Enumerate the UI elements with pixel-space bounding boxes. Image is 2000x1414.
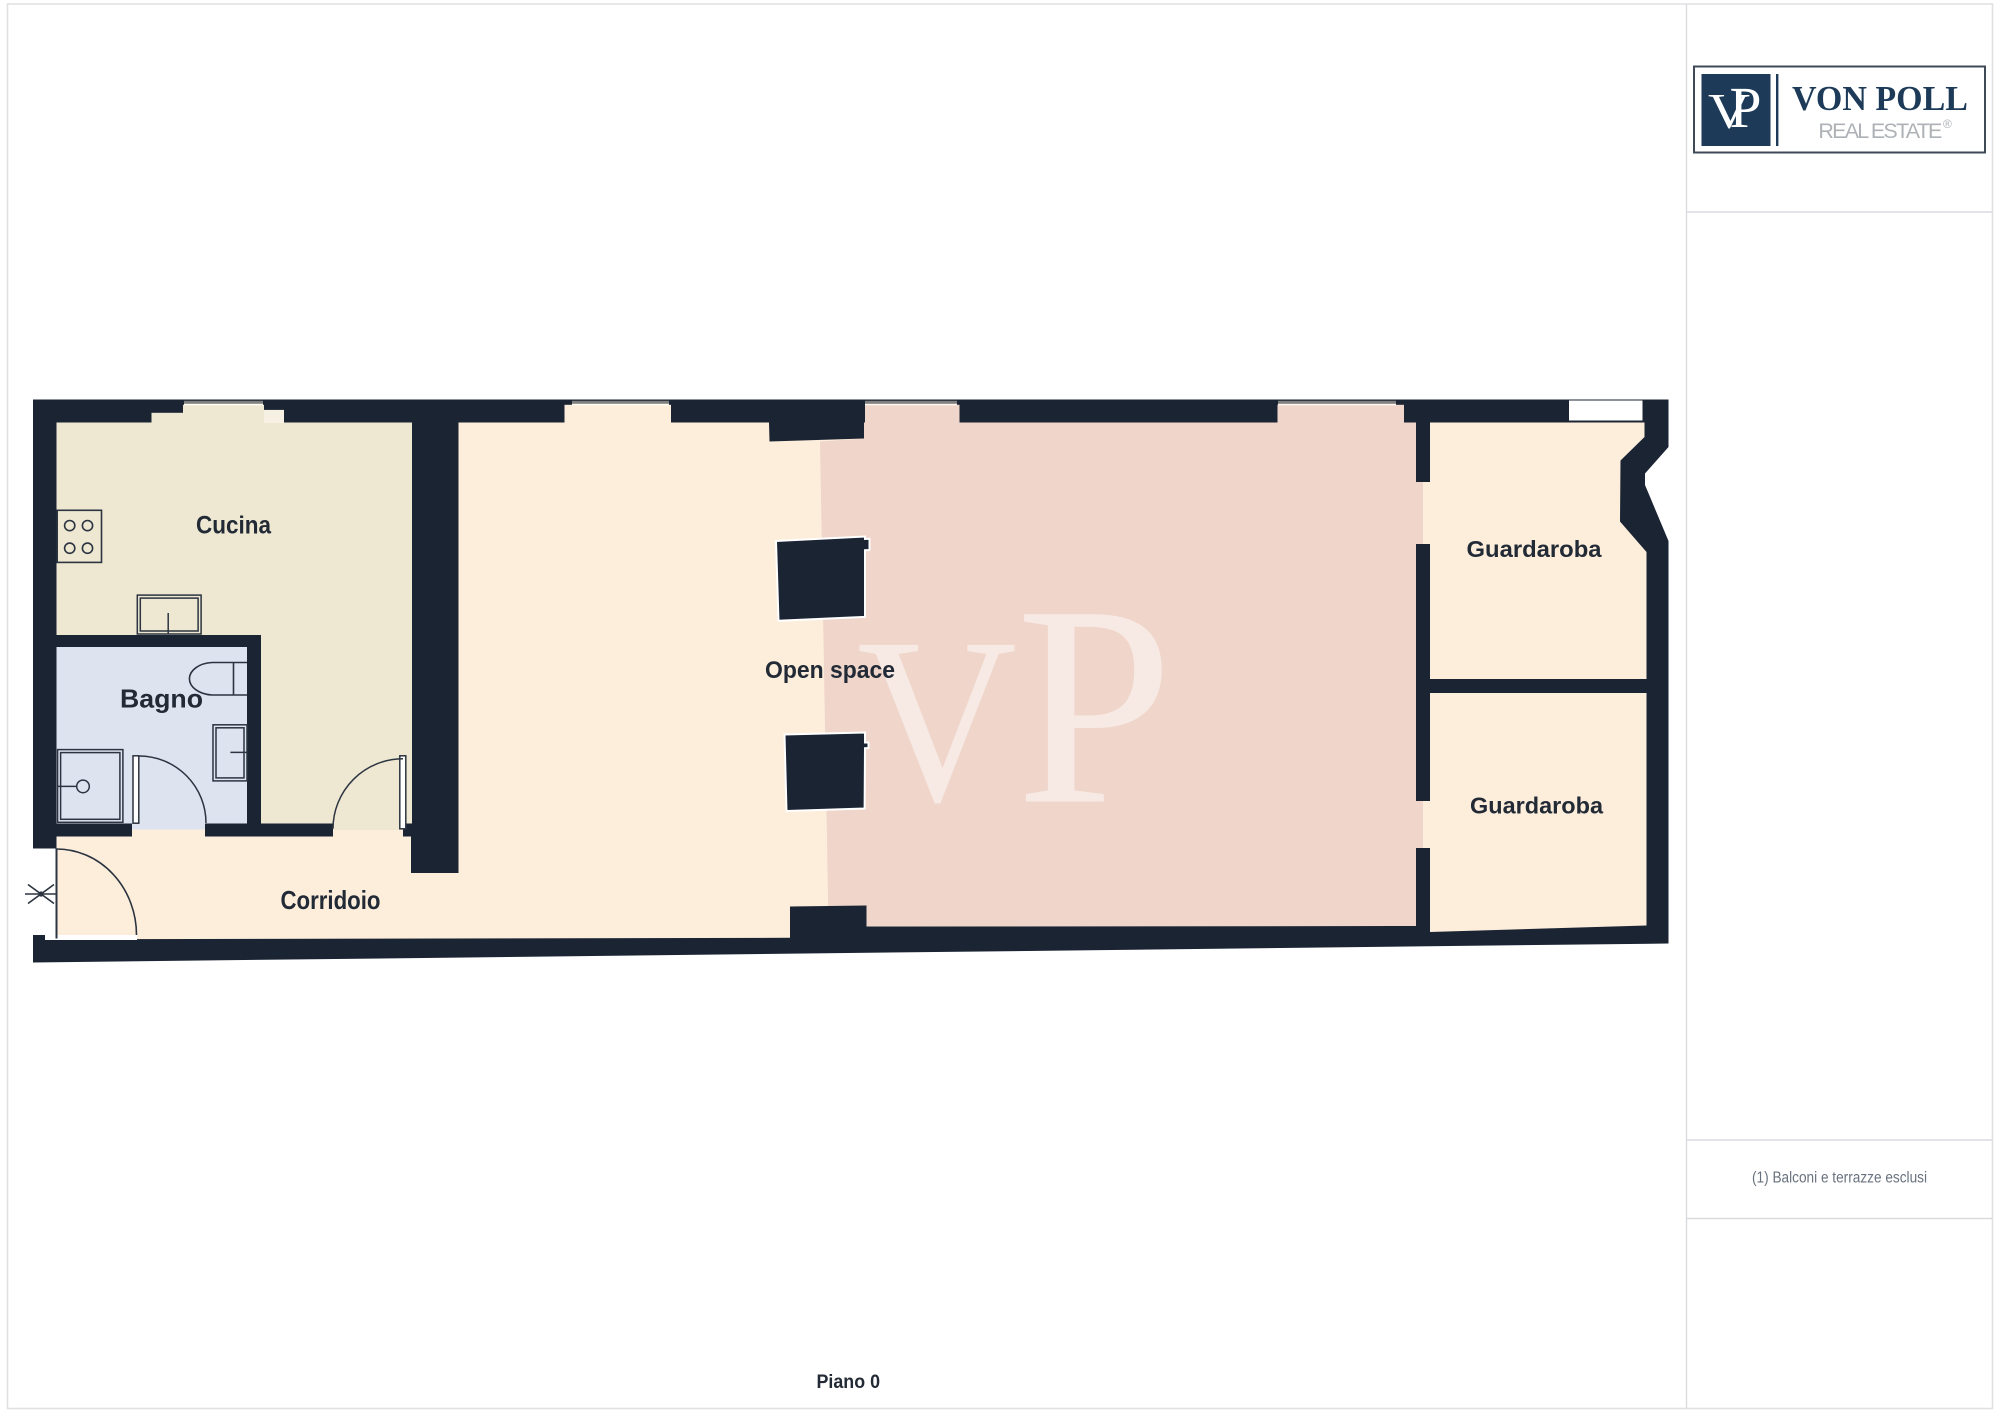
svg-text:V: V (857, 590, 1017, 852)
svg-text:REAL ESTATE: REAL ESTATE (1818, 119, 1942, 143)
svg-text:Open space: Open space (765, 657, 895, 684)
svg-text:Cucina: Cucina (196, 512, 272, 540)
svg-text:P: P (1730, 75, 1762, 140)
svg-text:Bagno: Bagno (120, 683, 203, 713)
svg-text:P: P (1016, 547, 1173, 864)
svg-text:Corridoio: Corridoio (281, 885, 381, 915)
svg-text:(1) Balconi e terrazze esclusi: (1) Balconi e terrazze esclusi (1752, 1170, 1927, 1187)
svg-text:®: ® (1943, 117, 1952, 131)
svg-text:Piano 0: Piano 0 (817, 1372, 881, 1393)
svg-text:VON POLL: VON POLL (1792, 79, 1968, 118)
svg-text:Guardaroba: Guardaroba (1470, 793, 1603, 819)
svg-text:Guardaroba: Guardaroba (1467, 536, 1602, 562)
